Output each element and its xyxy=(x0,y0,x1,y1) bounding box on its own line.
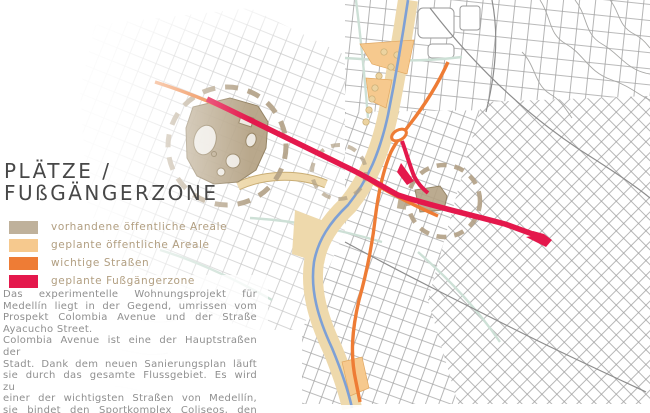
description-line-0: Das experimentelle Wohnungsprojekt für xyxy=(3,289,257,301)
legend-swatch-1 xyxy=(9,239,38,252)
legend-label-2: wichtige Straßen xyxy=(51,257,149,269)
legend-swatch-0 xyxy=(9,221,38,234)
page-title-line1: PLÄTZE / xyxy=(4,160,244,182)
page-title: PLÄTZE / FUßGÄNGERZONE xyxy=(4,160,244,204)
description-line-4: Colombia Avenue ist eine der Hauptstraße… xyxy=(3,335,257,358)
legend-swatch-2 xyxy=(9,257,38,270)
planning-poster: PLÄTZE / FUßGÄNGERZONE vorhandene öffent… xyxy=(0,0,650,413)
map-legend: vorhandene öffentliche Arealegeplante öf… xyxy=(9,218,259,290)
legend-label-0: vorhandene öffentliche Areale xyxy=(51,221,227,233)
page-title-line2: FUßGÄNGERZONE xyxy=(4,182,244,204)
legend-item-1: geplante öffentliche Areale xyxy=(9,236,259,254)
description-line-2: Prospekt Colombia Avenue und der Straße xyxy=(3,312,257,324)
description-line-6: sie durch das gesamte Flussgebiet. Es wi… xyxy=(3,370,257,393)
description-line-5: Stadt. Dank dem neuen Sanierungsplan läu… xyxy=(3,359,257,371)
legend-label-1: geplante öffentliche Areale xyxy=(51,239,210,251)
legend-item-2: wichtige Straßen xyxy=(9,254,259,272)
legend-label-3: geplante Fußgängerzone xyxy=(51,275,195,287)
description-text: Das experimentelle Wohnungsprojekt fürMe… xyxy=(3,289,257,413)
legend-item-3: geplante Fußgängerzone xyxy=(9,272,259,290)
top-fade xyxy=(0,0,340,55)
description-line-3: Ayacucho Street. xyxy=(3,324,257,336)
description-line-8: sie bindet den Sportkomplex Coliseos, de… xyxy=(3,405,257,413)
description-line-1: Medellín liegt in der Gegend, umrissen v… xyxy=(3,301,257,313)
legend-swatch-3 xyxy=(9,275,38,288)
legend-item-0: vorhandene öffentliche Areale xyxy=(9,218,259,236)
description-line-7: einer der wichtigsten Straßen von Medell… xyxy=(3,393,257,405)
